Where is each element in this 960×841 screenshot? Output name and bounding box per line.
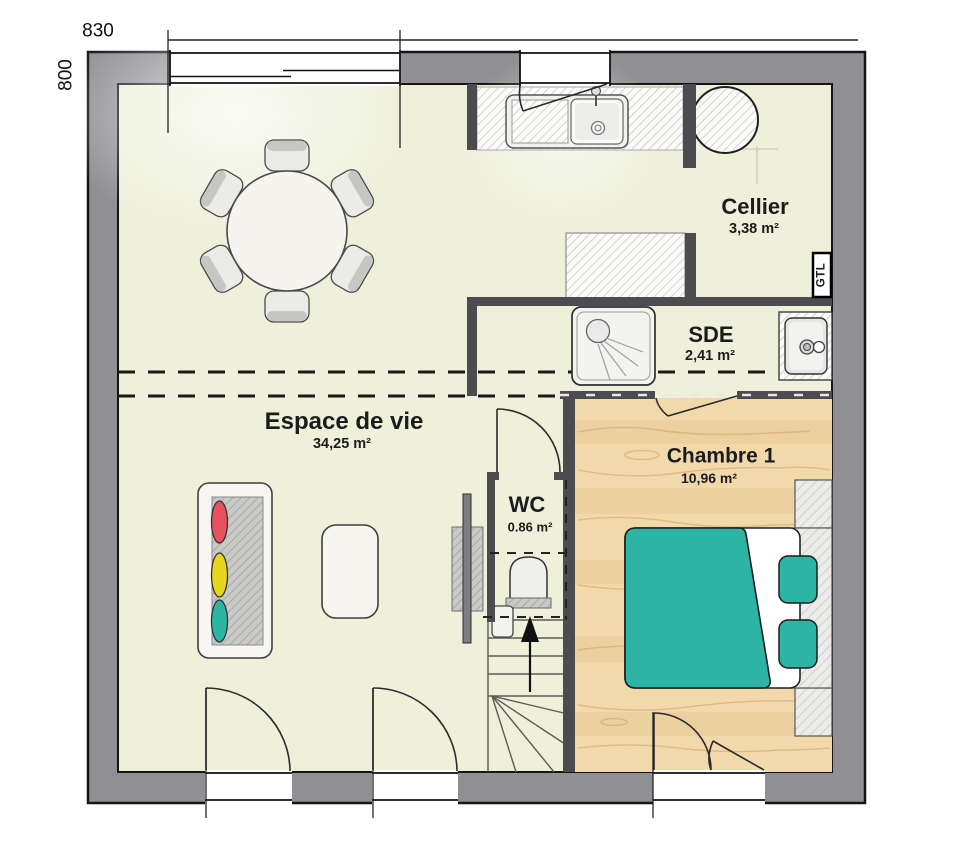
washbasin <box>779 312 832 380</box>
fridge-icon <box>566 233 685 298</box>
living-window-icon <box>205 770 292 805</box>
room-area-cellier: 3,38 m² <box>729 222 779 237</box>
gtl-label: GTL <box>816 263 828 288</box>
bedroom-window-icon <box>653 770 765 805</box>
bay-window-icon <box>170 50 400 86</box>
room-area-sde: 2,41 m² <box>685 349 735 364</box>
kitchen <box>477 87 683 151</box>
kitchen-window-icon <box>520 50 610 86</box>
floor-plan-drawing <box>0 0 960 841</box>
tv-screen-icon <box>463 494 471 643</box>
room-area-chambre-1: 10,96 m² <box>681 471 737 485</box>
shower <box>572 307 655 385</box>
pillow-icon <box>779 556 817 603</box>
room-area-wc: 0.86 m² <box>508 521 553 534</box>
shower-icon <box>572 307 655 385</box>
room-label-wc: WC <box>509 494 546 516</box>
dimension-top-label: 830 <box>82 22 114 41</box>
nightstand-icon <box>795 688 832 736</box>
sofa <box>198 483 272 658</box>
cushion-red-icon <box>212 501 228 543</box>
room-label-cellier: Cellier <box>721 196 788 218</box>
cushion-teal-icon <box>212 600 228 642</box>
living-window-icon <box>372 770 458 805</box>
dining-table-icon <box>227 171 347 291</box>
room-label-espace-de-vie: Espace de vie <box>265 410 424 434</box>
room-label-chambre-1: Chambre 1 <box>667 446 776 467</box>
dimension-left-label: 800 <box>57 59 76 91</box>
room-label-sde: SDE <box>688 324 733 346</box>
pillow-icon <box>779 620 817 668</box>
room-area-espace-de-vie: 34,25 m² <box>313 437 371 452</box>
toilet-icon <box>510 557 547 601</box>
coffee-table-icon <box>322 525 378 618</box>
nightstand-icon <box>795 480 832 528</box>
floor-plan: 830 800 Espace de vie 34,25 m² Cellier 3… <box>0 0 960 841</box>
cushion-yellow-icon <box>212 553 228 597</box>
double-bed-icon <box>625 528 770 688</box>
water-heater-icon <box>692 87 758 153</box>
